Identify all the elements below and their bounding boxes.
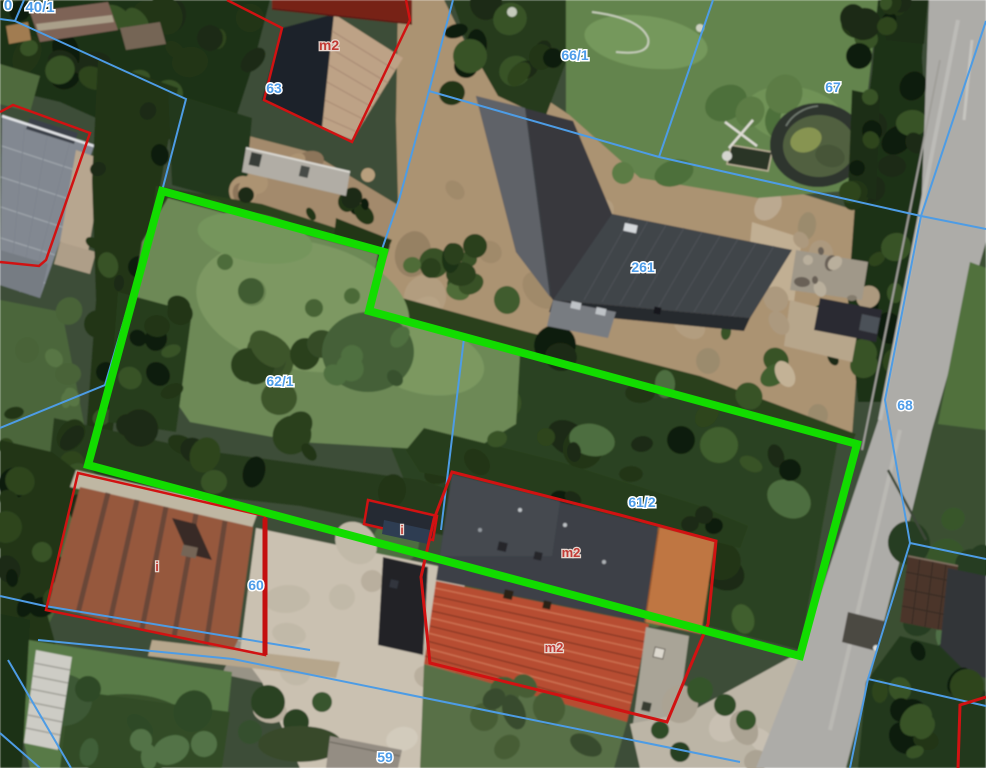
svg-text:62/1: 62/1 — [266, 373, 293, 389]
svg-text:66/1: 66/1 — [561, 47, 588, 63]
svg-text:i: i — [400, 523, 403, 537]
svg-text:m2: m2 — [319, 37, 339, 53]
svg-text:63: 63 — [266, 80, 282, 96]
svg-text:60: 60 — [248, 577, 264, 593]
svg-text:261: 261 — [631, 259, 655, 275]
svg-text:68: 68 — [897, 397, 913, 413]
svg-text:m2: m2 — [562, 545, 581, 560]
svg-text:59: 59 — [377, 749, 393, 765]
svg-text:m2: m2 — [545, 640, 564, 655]
svg-text:i: i — [155, 559, 159, 574]
svg-text:40/1: 40/1 — [25, 0, 54, 16]
svg-text:61/2: 61/2 — [628, 494, 655, 510]
svg-text:0: 0 — [4, 0, 12, 14]
svg-text:67: 67 — [825, 79, 841, 95]
